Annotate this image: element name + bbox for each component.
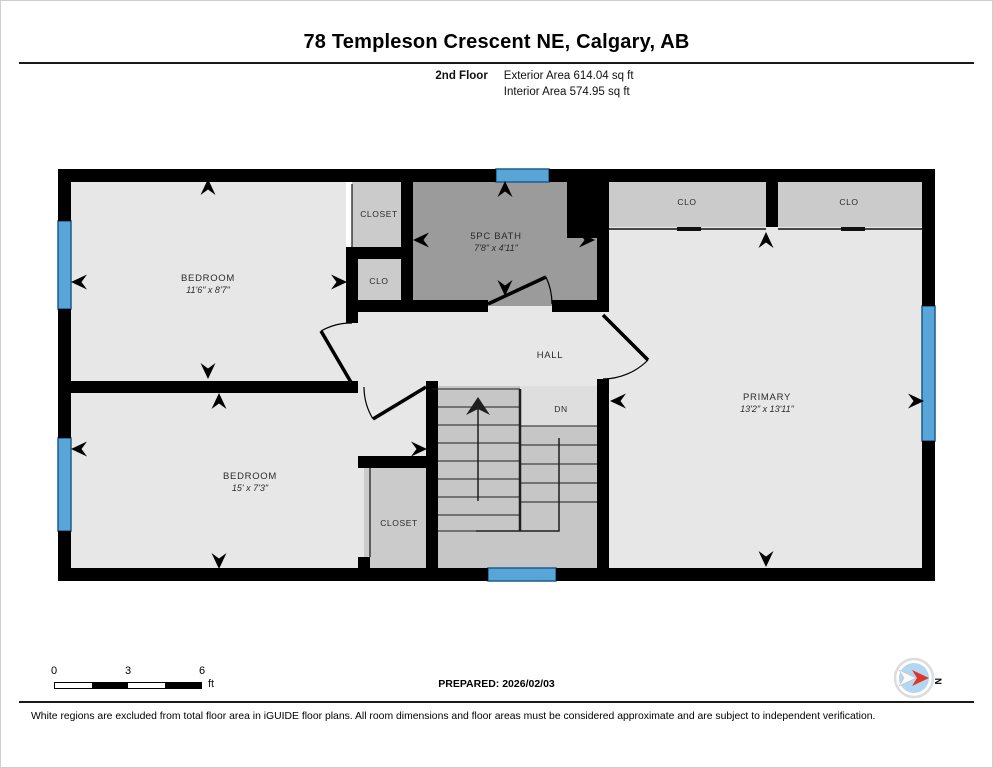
compass-north-label: N — [933, 678, 943, 685]
prepared-date: PREPARED: 2026/02/03 — [1, 678, 992, 690]
room-label-closet-top: CLOSET — [360, 209, 398, 219]
room-dims-bath: 7'8" x 4'11" — [474, 243, 518, 253]
footer-divider — [19, 701, 974, 703]
room-label-bath: 5PC BATH — [470, 231, 521, 242]
scale-tick-3: 3 — [125, 665, 131, 677]
room-label-clo-right-2: CLO — [839, 197, 858, 207]
room-label-hall: HALL — [537, 350, 564, 361]
window-left-bottom — [58, 438, 71, 531]
window-primary — [922, 306, 935, 441]
window-bath — [496, 169, 549, 182]
scale-tick-6: 6 — [199, 665, 205, 677]
stairs-dn-label: DN — [554, 404, 567, 414]
room-dims-primary: 13'2" x 13'11" — [740, 404, 795, 414]
floorplan-page: 78 Templeson Crescent NE, Calgary, AB 2n… — [0, 0, 993, 768]
room-dims-bedroom-bottom: 15' x 7'3" — [232, 483, 269, 493]
window-stairs — [488, 568, 556, 581]
scale-ticks: 0 3 6 — [54, 665, 224, 679]
room-label-clo-left: CLO — [369, 276, 388, 286]
room-label-clo-right-1: CLO — [677, 197, 696, 207]
room-label-bedroom-bottom: BEDROOM — [223, 471, 277, 482]
room-dims-bedroom-top: 11'6" x 8'7" — [186, 285, 230, 295]
scale-tick-0: 0 — [51, 665, 57, 677]
floor-plan: BEDROOM 11'6" x 8'7" CLOSET CLO 5PC BATH… — [1, 1, 993, 768]
room-label-closet-bottom: CLOSET — [380, 518, 418, 528]
room-hall — [346, 300, 609, 392]
compass-icon: N — [886, 653, 958, 703]
room-closet-bottom — [364, 462, 432, 569]
window-left-top — [58, 221, 71, 309]
room-label-bedroom-top: BEDROOM — [181, 273, 235, 284]
disclaimer-text: White regions are excluded from total fl… — [31, 711, 972, 722]
room-label-primary: PRIMARY — [743, 392, 791, 403]
